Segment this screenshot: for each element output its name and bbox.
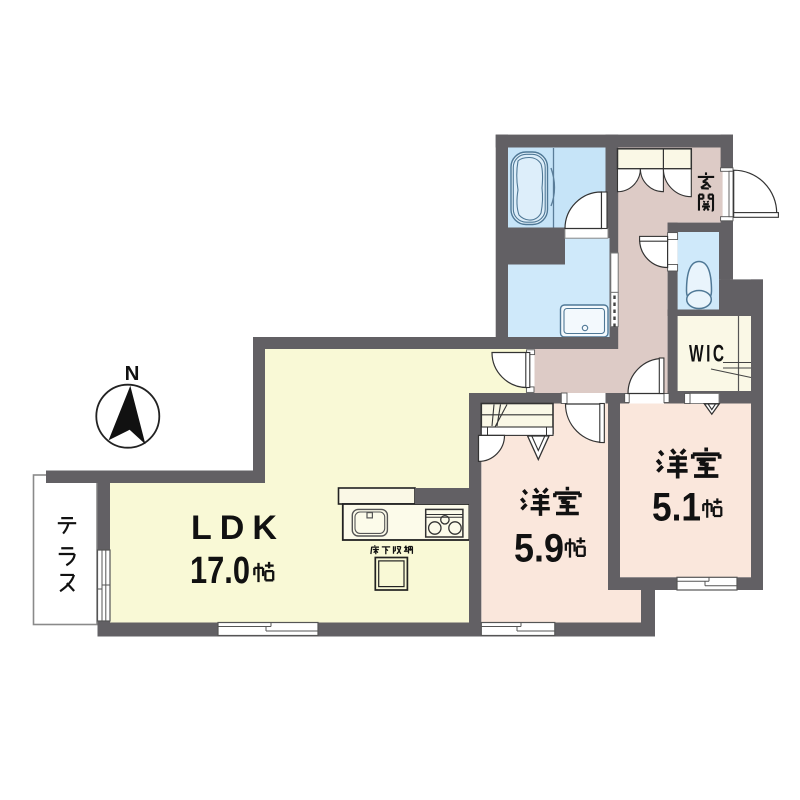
svg-text:WIC: WIC [689,340,727,368]
svg-text:5.1: 5.1 [652,486,701,530]
svg-text:N: N [125,362,140,385]
svg-text:5.9: 5.9 [514,527,564,571]
svg-text:17.0: 17.0 [190,550,250,592]
svg-text:LDK: LDK [191,509,285,547]
